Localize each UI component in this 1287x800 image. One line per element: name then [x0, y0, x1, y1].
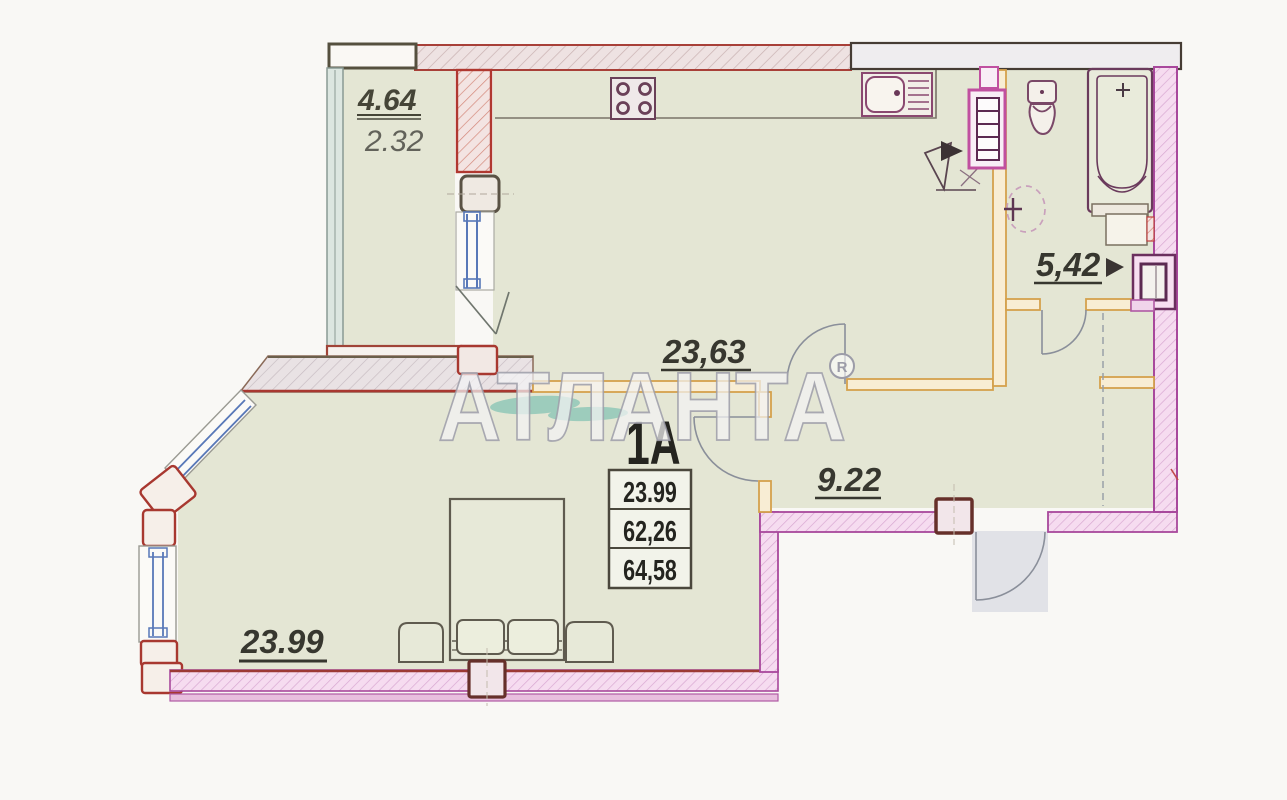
svg-text:62,26: 62,26 [623, 516, 677, 548]
svg-text:2.32: 2.32 [364, 125, 424, 158]
svg-text:9.22: 9.22 [817, 461, 882, 498]
svg-text:4.64: 4.64 [357, 84, 417, 117]
svg-text:АТЛАНТА: АТЛАНТА [438, 352, 846, 461]
svg-text:23.99: 23.99 [240, 623, 324, 660]
svg-text:64,58: 64,58 [623, 555, 677, 587]
svg-text:23.99: 23.99 [623, 477, 677, 509]
svg-text:5,42: 5,42 [1036, 246, 1101, 283]
svg-text:R: R [837, 359, 848, 376]
